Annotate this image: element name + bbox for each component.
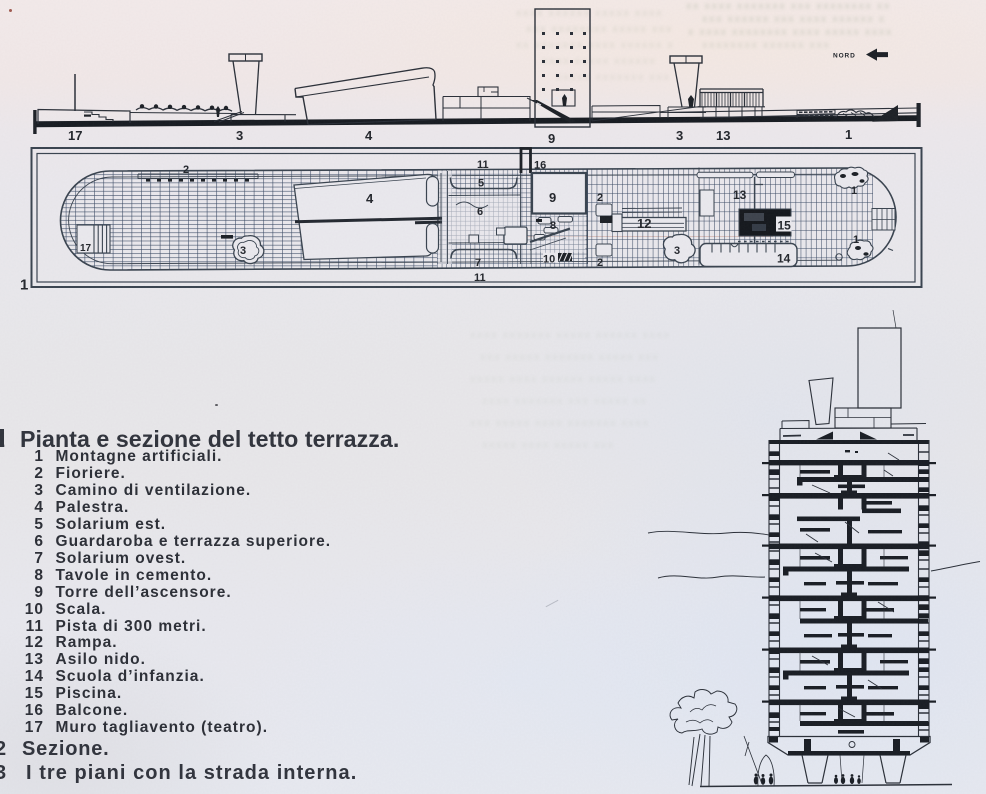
svg-text:2: 2 xyxy=(183,164,189,176)
svg-text:16: 16 xyxy=(534,160,546,172)
svg-text:14: 14 xyxy=(777,252,791,266)
svg-text:1: 1 xyxy=(851,185,857,197)
svg-text:11: 11 xyxy=(474,272,486,284)
svg-text:1: 1 xyxy=(853,234,859,246)
svg-text:15: 15 xyxy=(778,219,792,233)
svg-text:1: 1 xyxy=(20,277,28,294)
svg-text:11: 11 xyxy=(477,159,489,171)
svg-text:13: 13 xyxy=(733,188,747,202)
svg-text:3: 3 xyxy=(674,245,680,257)
svg-text:8: 8 xyxy=(550,220,556,232)
svg-text:9: 9 xyxy=(549,190,556,205)
svg-text:6: 6 xyxy=(477,206,483,218)
svg-text:17: 17 xyxy=(80,243,92,254)
svg-text:NORD: NORD xyxy=(833,53,856,60)
svg-text:12: 12 xyxy=(637,216,651,231)
svg-text:4: 4 xyxy=(366,191,374,206)
svg-text:2: 2 xyxy=(597,257,603,269)
svg-text:10: 10 xyxy=(543,254,555,266)
svg-text:3: 3 xyxy=(240,245,246,257)
svg-text:7: 7 xyxy=(475,257,481,269)
svg-text:2: 2 xyxy=(597,192,603,204)
svg-text:5: 5 xyxy=(478,178,484,190)
